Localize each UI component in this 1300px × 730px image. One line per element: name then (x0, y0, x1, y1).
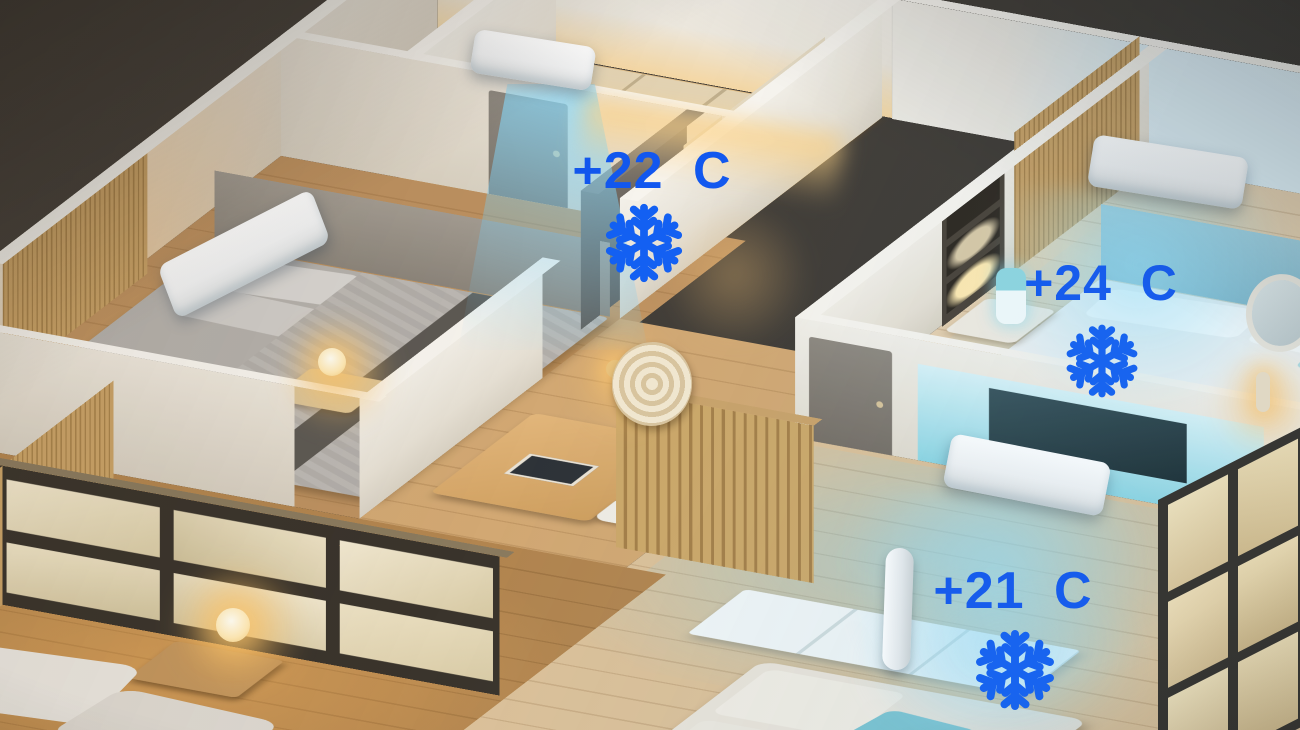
tv-screen (989, 388, 1187, 483)
door-handle (876, 401, 883, 409)
pillow (171, 287, 345, 342)
picture-frame (7, 542, 160, 620)
door-left-bedroom (489, 90, 568, 208)
picture-frame (340, 603, 493, 681)
apartment-render: +22 C +24 C +21 C (0, 0, 1300, 730)
pillow-accent (1295, 345, 1300, 383)
sofa-pillow-teal (832, 709, 979, 730)
book-on-table (504, 454, 599, 487)
door-living (809, 337, 892, 456)
door-handle (553, 150, 560, 158)
picture-frame (173, 573, 326, 651)
